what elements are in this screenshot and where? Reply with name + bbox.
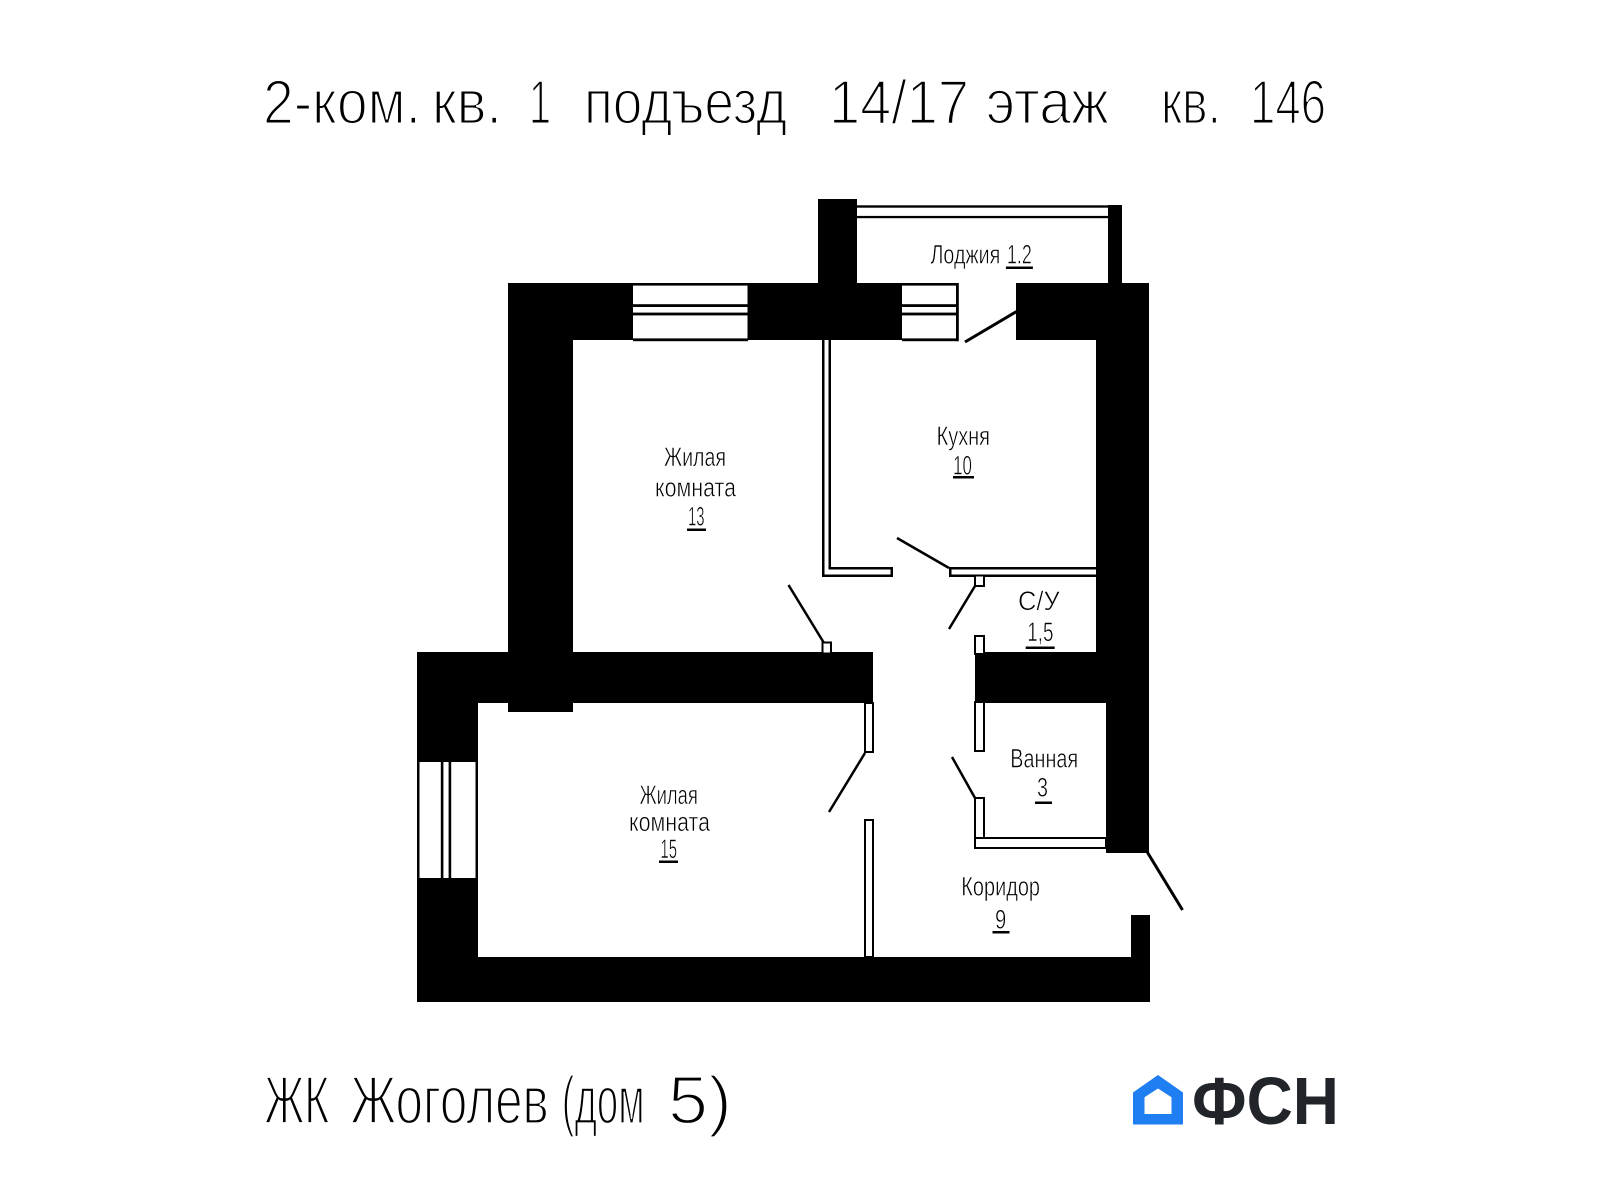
svg-text:15: 15 bbox=[660, 834, 677, 864]
svg-text:Жилая: Жилая bbox=[664, 442, 726, 472]
svg-text:Жилая: Жилая bbox=[640, 780, 698, 810]
svg-text:(дом: (дом bbox=[562, 1062, 645, 1138]
svg-text:С/У: С/У bbox=[1018, 586, 1060, 616]
svg-text:9: 9 bbox=[995, 905, 1006, 935]
svg-text:Ванная: Ванная bbox=[1010, 744, 1078, 774]
svg-text:подъезд: подъезд bbox=[584, 69, 787, 138]
svg-text:Кухня: Кухня bbox=[937, 421, 990, 451]
svg-text:Жоголев: Жоголев bbox=[351, 1062, 549, 1138]
svg-text:2-ком.: 2-ком. bbox=[263, 69, 421, 138]
svg-text:1,5: 1,5 bbox=[1027, 617, 1053, 647]
svg-text:3: 3 bbox=[1037, 773, 1048, 803]
svg-text:кв.: кв. bbox=[1161, 69, 1221, 138]
svg-text:146: 146 bbox=[1250, 69, 1326, 138]
svg-text:5): 5) bbox=[668, 1062, 732, 1138]
svg-text:1.2: 1.2 bbox=[1007, 239, 1032, 269]
svg-text:комната: комната bbox=[629, 807, 711, 837]
svg-text:комната: комната bbox=[655, 473, 737, 503]
svg-text:Коридор: Коридор bbox=[961, 872, 1040, 902]
svg-text:13: 13 bbox=[688, 502, 705, 532]
svg-text:ЖК: ЖК bbox=[264, 1062, 329, 1138]
svg-text:ФСН: ФСН bbox=[1192, 1064, 1339, 1139]
svg-text:кв.: кв. bbox=[432, 69, 502, 138]
svg-text:Лоджия: Лоджия bbox=[931, 239, 1001, 269]
svg-text:14/17: 14/17 bbox=[829, 69, 969, 138]
svg-text:этаж: этаж bbox=[986, 69, 1109, 138]
svg-text:1: 1 bbox=[529, 69, 551, 138]
